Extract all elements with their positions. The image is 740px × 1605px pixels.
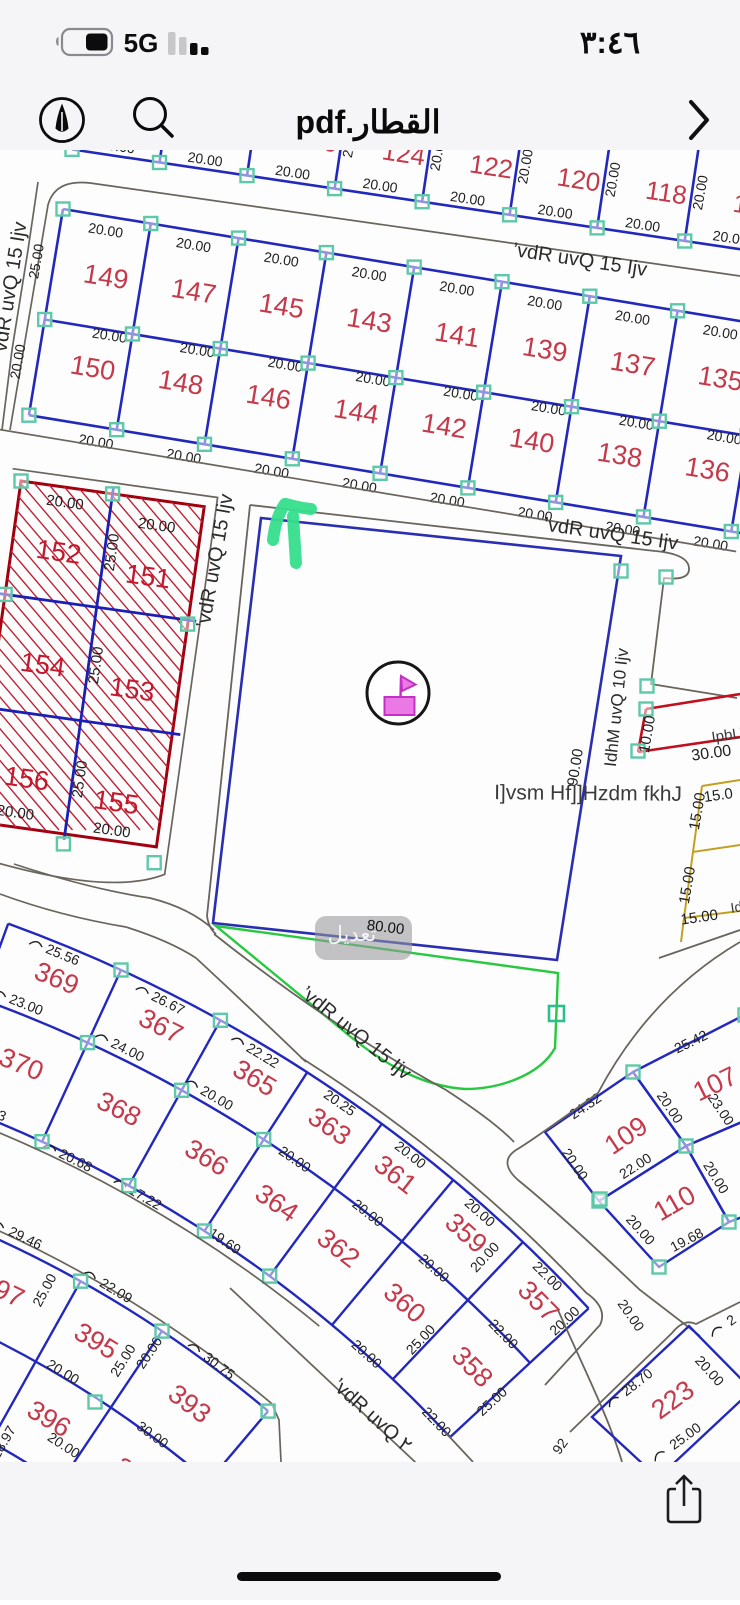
svg-text:118: 118	[644, 175, 689, 211]
svg-text:154: 154	[18, 647, 67, 683]
svg-text:Id: Id	[729, 898, 740, 915]
svg-text:152: 152	[34, 534, 83, 570]
svg-text:I]vsm Hf‭]]‬Hzdm fkhJ: I]vsm Hf‭]]‬Hzdm fkhJ	[494, 781, 682, 806]
svg-text:153: 153	[108, 671, 157, 707]
svg-text:155: 155	[92, 784, 141, 820]
svg-text:122: 122	[468, 148, 515, 184]
svg-text:120: 120	[555, 161, 602, 197]
svg-text:pdf.القطار: pdf.القطار	[296, 104, 441, 142]
svg-text:151: 151	[124, 558, 173, 594]
svg-text:5G: 5G	[124, 28, 159, 58]
svg-text:٣:٤٦: ٣:٤٦	[580, 25, 640, 60]
svg-text:156: 156	[2, 761, 51, 797]
